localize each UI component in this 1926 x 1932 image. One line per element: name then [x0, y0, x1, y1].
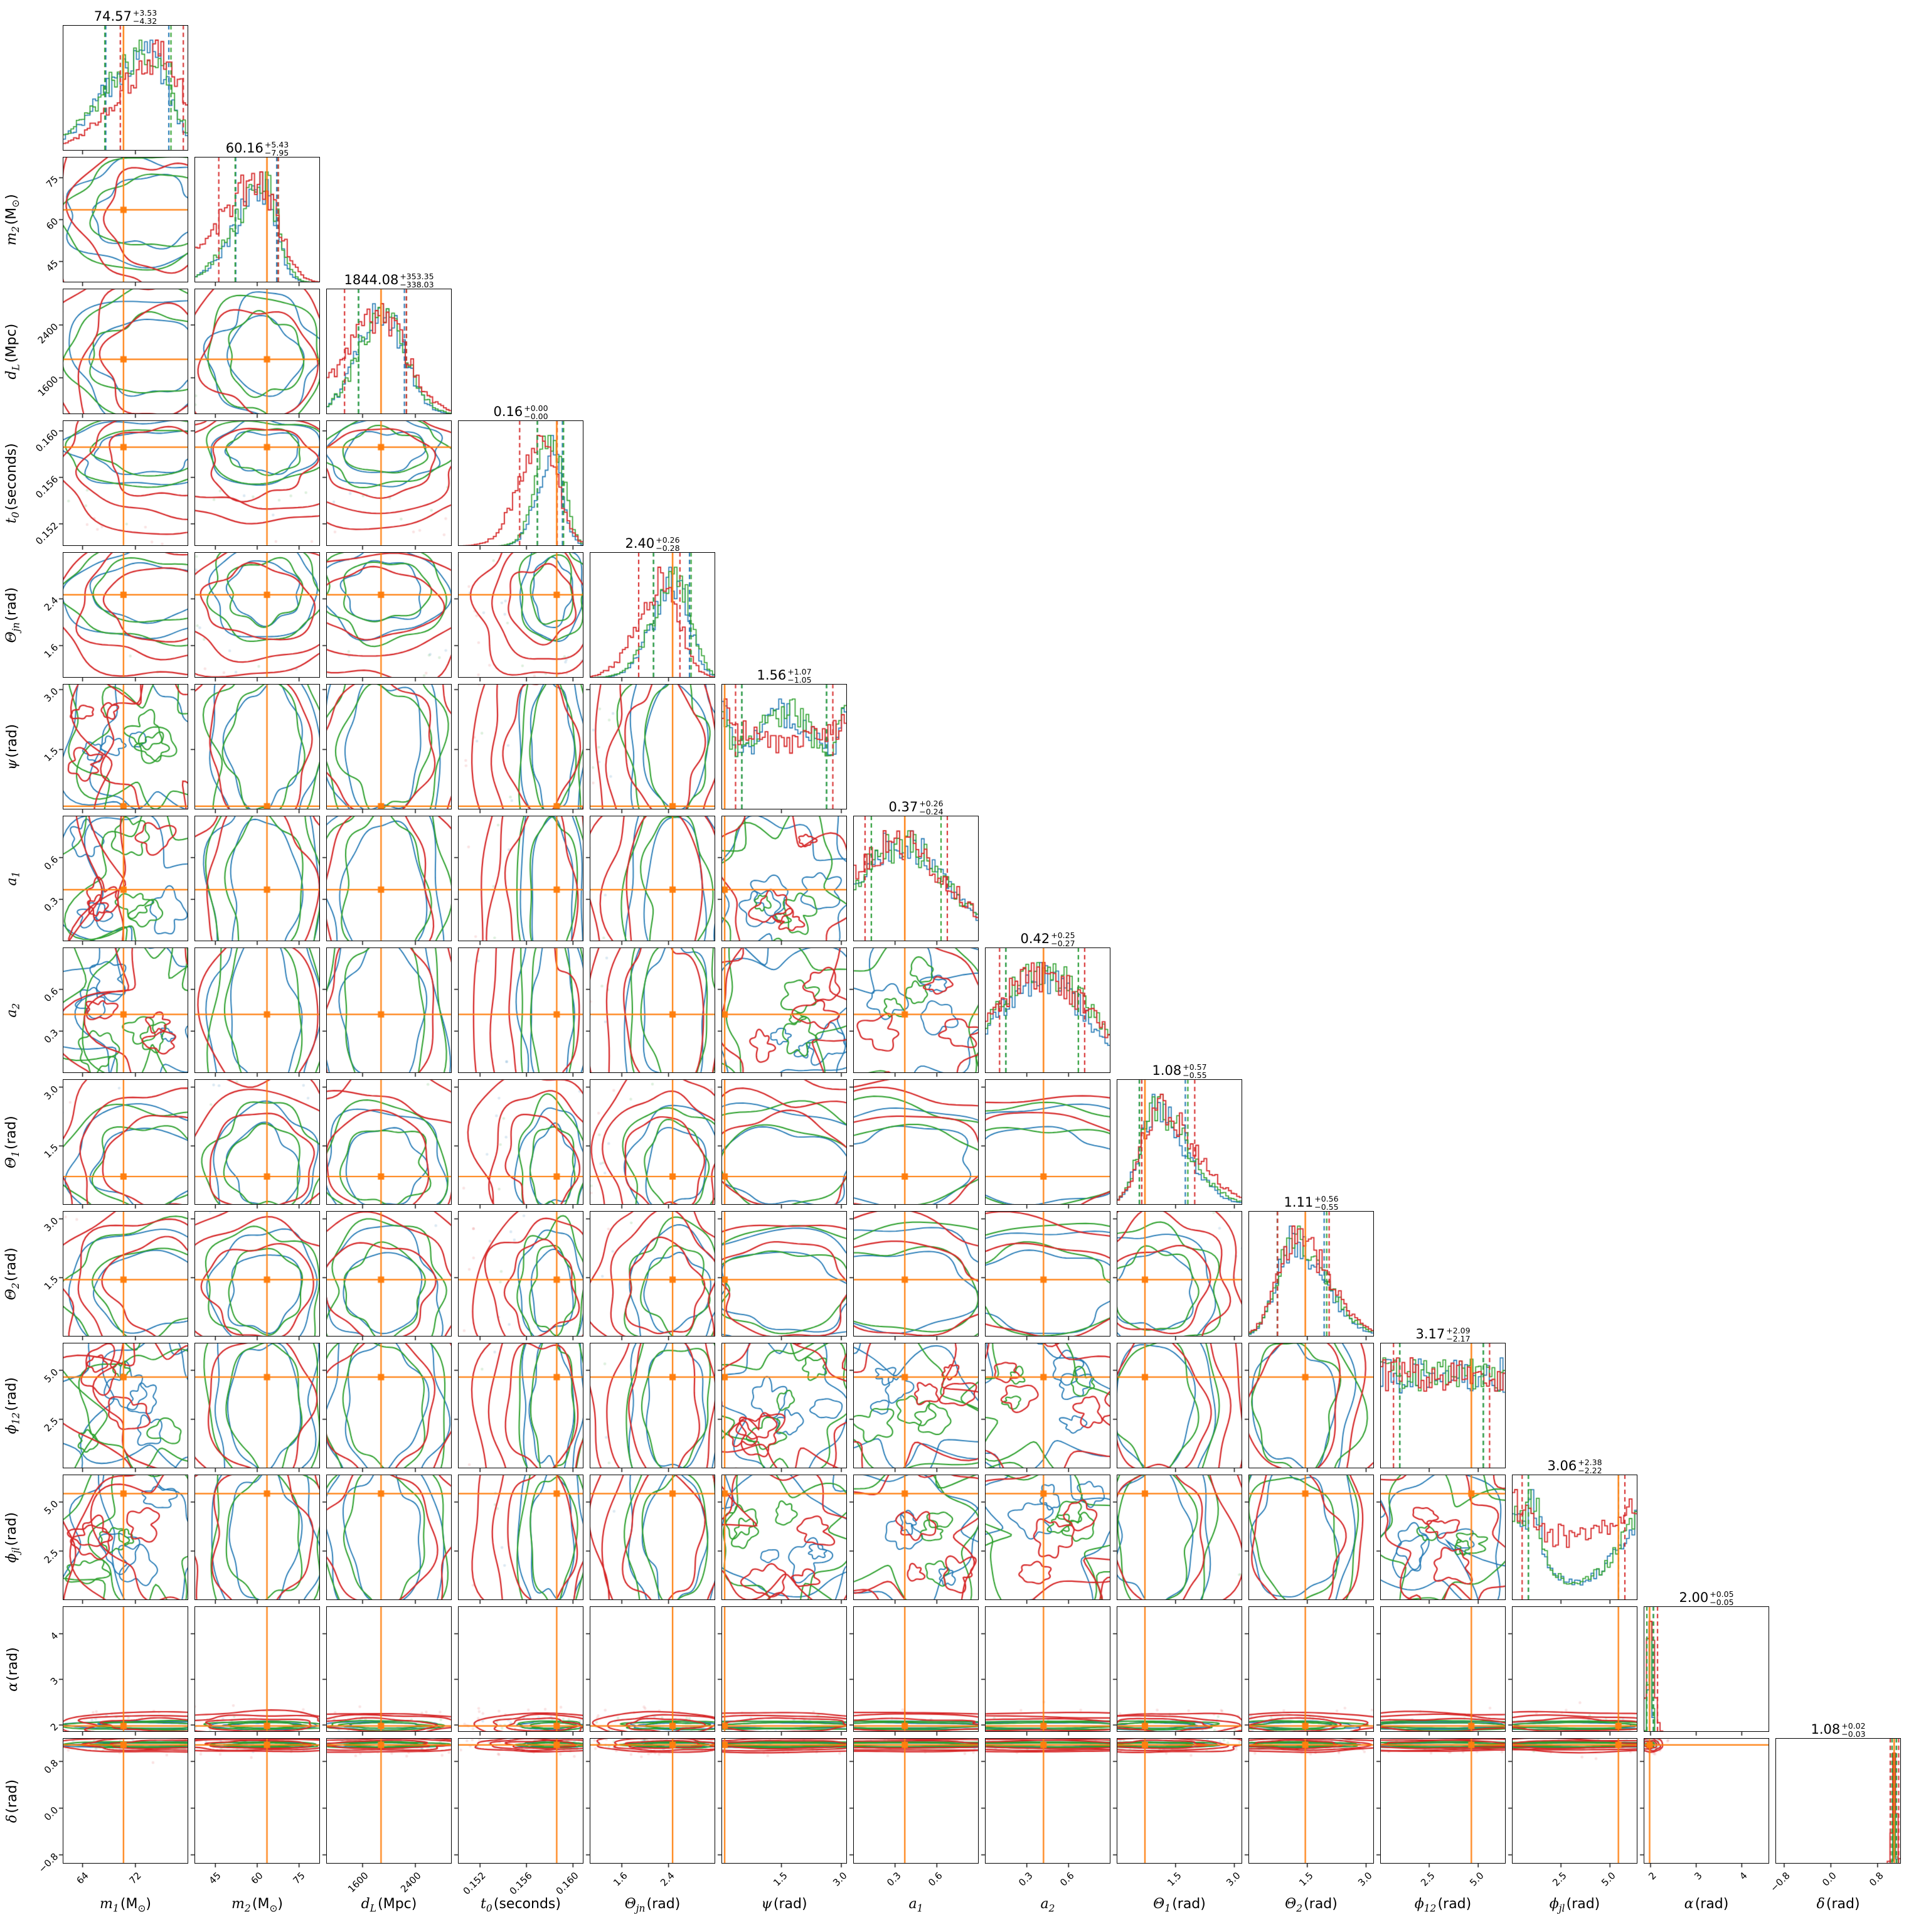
panel-theta2-vs-a1 [853, 1211, 979, 1337]
panel-theta1-vs-psi [721, 1079, 847, 1205]
panel-theta_jn-vs-m2 [194, 552, 320, 678]
panel-phi12-vs-theta_jn [590, 1343, 715, 1468]
diag-title-t0: 0.16+0.00−0.00 [433, 395, 609, 420]
panel-a2-vs-theta_jn [590, 947, 715, 1073]
panel-a1-vs-theta_jn [590, 816, 715, 941]
title-median: 3.17 [1415, 1328, 1445, 1341]
panel-delta-vs-theta_jn [590, 1738, 715, 1864]
panel-delta-vs-m2 [194, 1738, 320, 1864]
diag-title-delta: 1.08+0.02−0.03 [1750, 1713, 1926, 1738]
panel-phi12-vs-a1 [853, 1343, 979, 1468]
title-minus: −0.00 [524, 412, 548, 420]
y-axis-label-a1: a1 [1, 816, 24, 941]
diag-title-theta_jn: 2.40+0.26−0.28 [565, 527, 740, 552]
panel-delta-vs-theta2 [1248, 1738, 1374, 1864]
panel-phi12-vs-m2 [194, 1343, 320, 1468]
panel-theta2-vs-dL [326, 1211, 452, 1337]
panel-psi-vs-theta_jn [590, 684, 715, 809]
panel-theta2-vs-m1 [63, 1211, 188, 1337]
title-median: 0.42 [1020, 932, 1050, 946]
panel-delta-vs-psi [721, 1738, 847, 1864]
title-minus: −0.55 [1183, 1071, 1206, 1079]
panel-theta2-vs-theta_jn [590, 1211, 715, 1337]
param-sub: 2 [1296, 1903, 1302, 1914]
param-sub: 1 [1164, 1903, 1171, 1914]
panel-phi12-vs-a2 [985, 1343, 1110, 1468]
panel-psi-vs-t0 [458, 684, 583, 809]
panel-alpha-vs-a2 [985, 1606, 1110, 1732]
diag-title-phi_jl: 3.06+2.38−2.22 [1487, 1449, 1663, 1475]
title-median: 2.00 [1679, 1591, 1708, 1604]
panel-phi12-vs-t0 [458, 1343, 583, 1468]
diag-title-psi: 1.56+1.07−1.05 [696, 659, 872, 684]
title-errors: +0.57−0.55 [1183, 1063, 1206, 1079]
title-minus: −0.55 [1314, 1203, 1338, 1211]
panel-phi_jl-vs-m1 [63, 1475, 188, 1600]
title-minus: −0.27 [1051, 939, 1075, 947]
panel-alpha-vs-m1 [63, 1606, 188, 1732]
panel-dL-vs-m2 [194, 289, 320, 414]
panel-a1-vs-psi [721, 816, 847, 941]
title-median: 3.06 [1547, 1460, 1577, 1473]
title-errors: +0.25−0.27 [1051, 931, 1075, 947]
title-median: 1.56 [757, 669, 786, 682]
panel-theta2-vs-m2 [194, 1211, 320, 1337]
title-minus: −4.32 [133, 17, 157, 25]
title-errors: +0.02−0.03 [1841, 1722, 1865, 1738]
panel-delta-vs-m1 [63, 1738, 188, 1864]
corner-plot-figure: 74.57+3.53−4.32m1 (M⊙)647260.16+5.43−7.9… [0, 0, 1926, 1926]
title-errors: +3.53−4.32 [133, 9, 157, 25]
title-errors: +0.26−0.24 [919, 799, 943, 816]
title-errors: +5.43−7.95 [265, 141, 289, 157]
panel-alpha-vs-psi [721, 1606, 847, 1732]
panel-alpha-vs-dL [326, 1606, 452, 1732]
panel-a2-vs-t0 [458, 947, 583, 1073]
title-errors: +1.07−1.05 [787, 668, 811, 684]
param-var: ψ [5, 759, 21, 769]
panel-delta-vs-dL [326, 1738, 452, 1864]
title-errors: +0.26−0.28 [656, 536, 679, 552]
title-median: 0.16 [493, 405, 523, 419]
title-errors: +0.00−0.00 [524, 404, 548, 420]
panel-t0-vs-m1 [63, 420, 188, 546]
panel-phi_jl-vs-theta_jn [590, 1475, 715, 1600]
diag-title-phi12: 3.17+2.09−2.17 [1355, 1318, 1531, 1343]
panel-theta1-vs-t0 [458, 1079, 583, 1205]
panel-theta2-vs-theta1 [1117, 1211, 1242, 1337]
title-minus: −0.28 [656, 544, 679, 552]
param-var: t [481, 1896, 486, 1912]
panel-t0-vs-dL [326, 420, 452, 546]
panel-phi_jl-vs-psi [721, 1475, 847, 1600]
panel-theta_jn-vs-m1 [63, 552, 188, 678]
panel-a2-vs-a1 [853, 947, 979, 1073]
param-var: α [1684, 1896, 1694, 1912]
diag-title-alpha: 2.00+0.05−0.05 [1619, 1581, 1794, 1606]
panel-m2-vs-m1 [63, 157, 188, 282]
panel-alpha-vs-theta1 [1117, 1606, 1242, 1732]
panel-alpha-vs-m2 [194, 1606, 320, 1732]
panel-t0-vs-m2 [194, 420, 320, 546]
param-var: Θ [4, 1157, 19, 1168]
title-median: 1844.08 [344, 274, 398, 287]
panel-phi_jl-vs-a1 [853, 1475, 979, 1600]
panel-phi12-vs-dL [326, 1343, 452, 1468]
panel-delta-vs-theta1 [1117, 1738, 1242, 1864]
diag-title-a2: 0.42+0.25−0.27 [960, 922, 1136, 947]
panel-delta-vs-a2 [985, 1738, 1110, 1864]
panel-theta1-vs-a1 [853, 1079, 979, 1205]
param-sub: 2 [245, 1903, 251, 1914]
diag-title-a1: 0.37+0.26−0.24 [828, 791, 1004, 816]
panel-phi_jl-vs-phi12 [1380, 1475, 1506, 1600]
panel-phi12-vs-m1 [63, 1343, 188, 1468]
panel-a2-vs-m1 [63, 947, 188, 1073]
param-var: d [361, 1896, 370, 1912]
panel-phi12-vs-psi [721, 1343, 847, 1468]
title-median: 74.57 [94, 10, 132, 23]
panel-theta1-vs-dL [326, 1079, 452, 1205]
panel-theta1-vs-m2 [194, 1079, 320, 1205]
title-errors: +2.38−2.22 [1578, 1458, 1602, 1475]
panel-delta-vs-t0 [458, 1738, 583, 1864]
title-median: 1.11 [1284, 1196, 1313, 1209]
panel-delta-vs-phi_jl [1512, 1738, 1637, 1864]
title-errors: +0.05−0.05 [1710, 1590, 1733, 1606]
panel-theta1-vs-a2 [985, 1079, 1110, 1205]
panel-delta-hist [1775, 1738, 1901, 1864]
param-var: a [4, 877, 19, 885]
title-minus: −2.22 [1578, 1466, 1602, 1475]
title-errors: +0.56−0.55 [1314, 1195, 1338, 1211]
y-axis-label-theta_jn: Θjn (rad) [1, 552, 24, 678]
panel-phi_jl-vs-theta1 [1117, 1475, 1242, 1600]
panel-psi-vs-m1 [63, 684, 188, 809]
panel-a1-vs-t0 [458, 816, 583, 941]
param-sub: jl [1559, 1903, 1565, 1914]
y-axis-label-a2: a2 [1, 947, 24, 1073]
panel-theta1-vs-m1 [63, 1079, 188, 1205]
panel-a1-vs-dL [326, 816, 452, 941]
panel-a1-vs-m1 [63, 816, 188, 941]
title-minus: −0.24 [919, 808, 943, 816]
param-var: ϕ [1550, 1896, 1559, 1912]
panel-alpha-vs-theta2 [1248, 1606, 1374, 1732]
panel-theta2-vs-t0 [458, 1211, 583, 1337]
panel-alpha-vs-t0 [458, 1606, 583, 1732]
panel-a2-vs-m2 [194, 947, 320, 1073]
title-median: 1.08 [1152, 1064, 1181, 1077]
panel-delta-vs-alpha [1644, 1738, 1769, 1864]
panel-phi_jl-vs-m2 [194, 1475, 320, 1600]
panel-phi12-vs-theta2 [1248, 1343, 1374, 1468]
panel-psi-vs-dL [326, 684, 452, 809]
panel-a1-vs-m2 [194, 816, 320, 941]
title-median: 1.08 [1811, 1723, 1840, 1736]
title-errors: +2.09−2.17 [1446, 1326, 1470, 1343]
panel-alpha-vs-phi12 [1380, 1606, 1506, 1732]
panel-phi_jl-vs-dL [326, 1475, 452, 1600]
panel-theta1-vs-theta_jn [590, 1079, 715, 1205]
panel-theta_jn-vs-dL [326, 552, 452, 678]
diag-title-m1: 74.57+3.53−4.32 [38, 0, 213, 25]
param-sub: 1 [10, 1151, 21, 1157]
title-minus: −1.05 [787, 676, 811, 684]
panel-delta-vs-a1 [853, 1738, 979, 1864]
param-sub: 1 [10, 872, 21, 878]
param-unit: (M⊙) [120, 1896, 151, 1912]
panel-theta2-vs-a2 [985, 1211, 1110, 1337]
diag-title-theta2: 1.11+0.56−0.55 [1223, 1186, 1399, 1211]
panel-psi-vs-m2 [194, 684, 320, 809]
param-var: Θ [4, 1289, 19, 1300]
panel-a2-vs-dL [326, 947, 452, 1073]
title-median: 0.37 [888, 801, 918, 814]
panel-phi_jl-vs-theta2 [1248, 1475, 1374, 1600]
diag-title-dL: 1844.08+353.35−338.03 [301, 264, 477, 289]
param-var: a [4, 1009, 19, 1017]
param-unit: (rad) [4, 587, 19, 621]
panel-phi_jl-vs-t0 [458, 1475, 583, 1600]
panel-a2-vs-psi [721, 947, 847, 1073]
title-minus: −0.03 [1841, 1730, 1865, 1738]
title-minus: −0.05 [1710, 1598, 1733, 1606]
panel-alpha-vs-a1 [853, 1606, 979, 1732]
panel-phi12-vs-theta1 [1117, 1343, 1242, 1468]
title-minus: −2.17 [1446, 1335, 1470, 1343]
diag-title-theta1: 1.08+0.57−0.55 [1092, 1054, 1267, 1079]
panel-dL-vs-m1 [63, 289, 188, 414]
panel-phi_jl-vs-a2 [985, 1475, 1110, 1600]
panel-delta-vs-phi12 [1380, 1738, 1506, 1864]
title-median: 60.16 [226, 142, 263, 155]
panel-alpha-vs-theta_jn [590, 1606, 715, 1732]
panel-alpha-vs-phi_jl [1512, 1606, 1637, 1732]
panel-theta2-vs-psi [721, 1211, 847, 1337]
title-median: 2.40 [625, 537, 654, 550]
title-errors: +353.35−338.03 [400, 272, 434, 289]
panel-theta_jn-vs-t0 [458, 552, 583, 678]
title-minus: −7.95 [265, 149, 289, 157]
param-sub: 2 [10, 1283, 21, 1289]
param-sub: 2 [10, 1003, 21, 1010]
title-minus: −338.03 [400, 280, 434, 289]
diag-title-m2: 60.16+5.43−7.95 [169, 132, 345, 157]
